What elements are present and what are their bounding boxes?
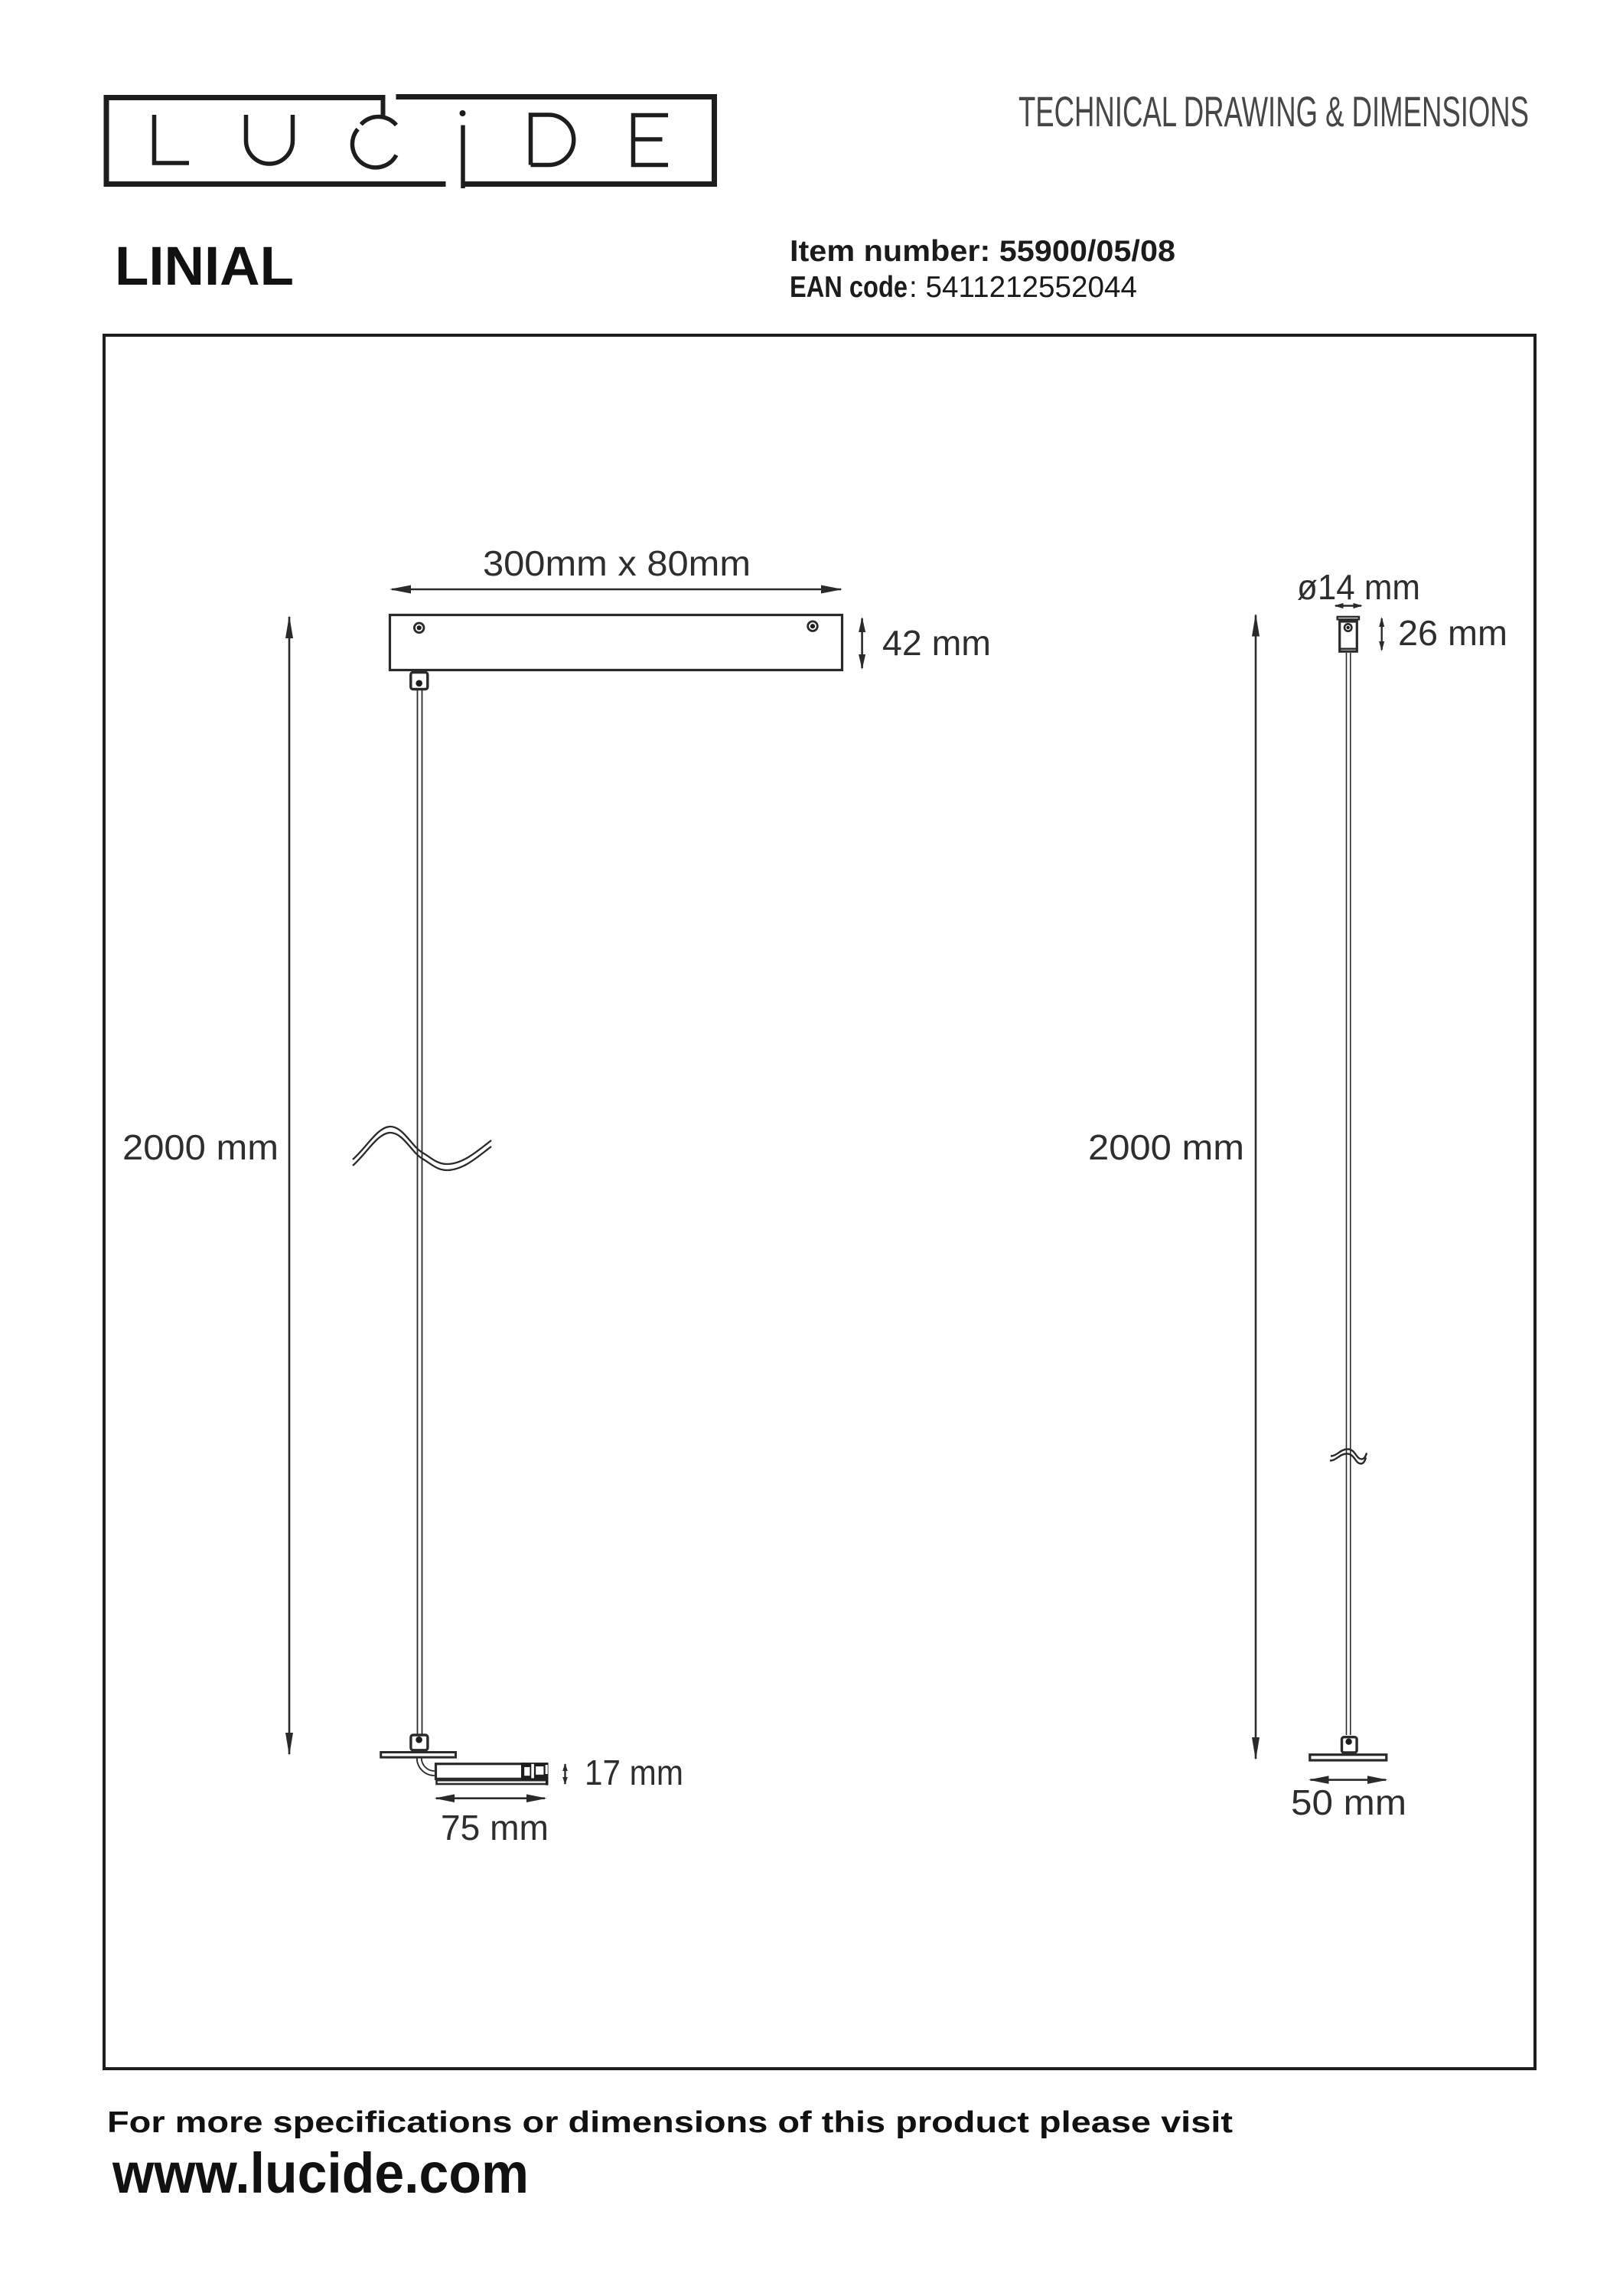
svg-text:Item number: 55900/05/08: Item number: 55900/05/08 [790, 235, 1175, 268]
svg-text:42 mm: 42 mm [882, 623, 991, 663]
svg-text:For more specifications or dim: For more specifications or dimensions of… [107, 2106, 1233, 2139]
svg-text:2000 mm: 2000 mm [1088, 1127, 1244, 1167]
svg-text:LINIAL: LINIAL [115, 236, 294, 297]
svg-text:: 5411212552044: : 5411212552044 [909, 271, 1137, 304]
svg-text:www.lucide.com: www.lucide.com [112, 2141, 529, 2205]
svg-text:17 mm: 17 mm [585, 1753, 683, 1792]
svg-text:ø14 mm: ø14 mm [1297, 567, 1420, 607]
svg-text:26 mm: 26 mm [1398, 613, 1507, 653]
svg-text:2000 mm: 2000 mm [122, 1127, 279, 1167]
svg-text:75 mm: 75 mm [441, 1808, 549, 1848]
svg-text:EAN code: EAN code [790, 271, 908, 304]
svg-text:TECHNICAL DRAWING & DIMENSIONS: TECHNICAL DRAWING & DIMENSIONS [1018, 87, 1529, 135]
svg-text:50 mm: 50 mm [1291, 1782, 1406, 1822]
svg-text:300mm x 80mm: 300mm x 80mm [483, 543, 751, 583]
